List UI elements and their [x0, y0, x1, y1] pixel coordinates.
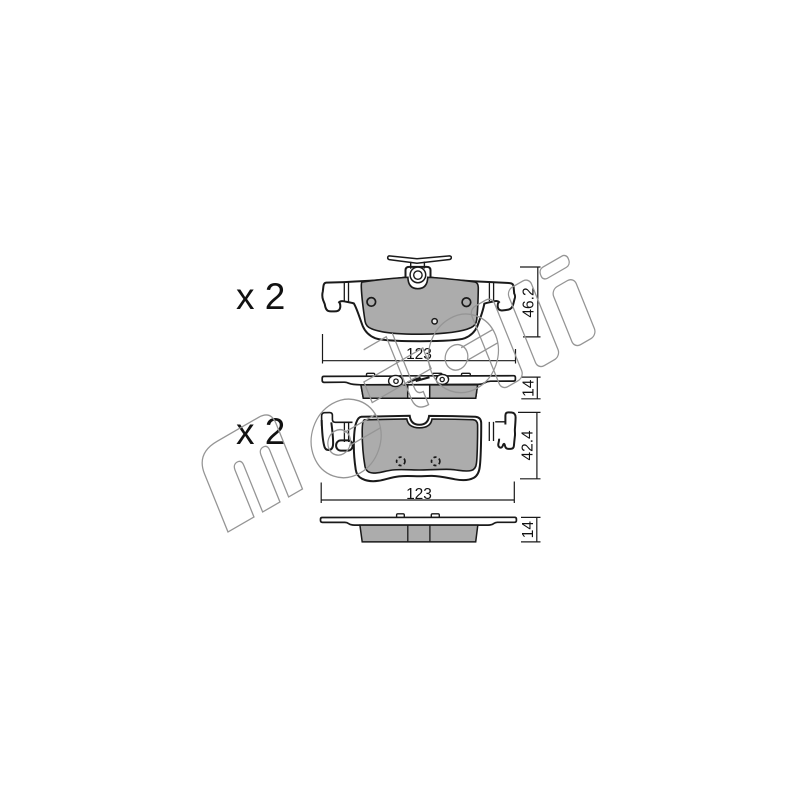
svg-text:x 2: x 2	[236, 411, 285, 452]
svg-text:123: 123	[406, 486, 432, 503]
svg-text:14: 14	[520, 521, 537, 539]
svg-text:14: 14	[521, 379, 538, 397]
svg-text:42.4: 42.4	[520, 430, 537, 461]
svg-text:x 2: x 2	[236, 276, 285, 317]
